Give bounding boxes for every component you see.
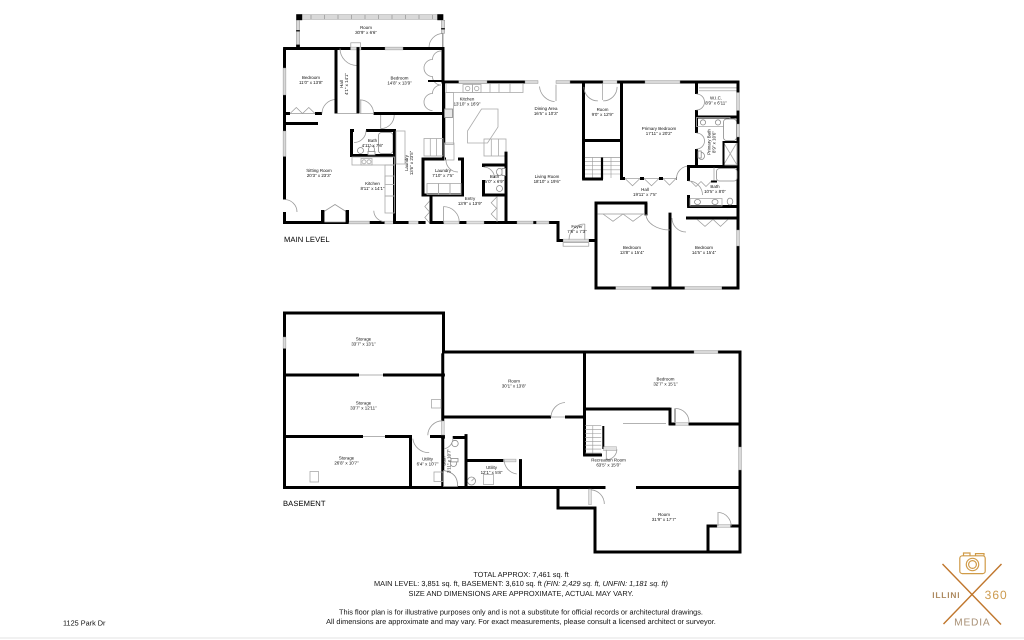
svg-text:11'0" x 13'8": 11'0" x 13'8" <box>299 80 323 85</box>
svg-text:BASEMENT: BASEMENT <box>283 499 326 508</box>
svg-text:MAIN LEVEL: MAIN LEVEL <box>284 235 330 244</box>
svg-text:All dimensions are approximate: All dimensions are approximate and may v… <box>326 617 716 626</box>
svg-text:19'11" x 7'5": 19'11" x 7'5" <box>633 192 657 197</box>
svg-text:10'5" x 8'0": 10'5" x 8'0" <box>704 189 726 194</box>
svg-text:13'9" x 13'9": 13'9" x 13'9" <box>458 201 483 206</box>
svg-text:16'5" x 10'3": 16'5" x 10'3" <box>534 111 559 116</box>
svg-text:26'8" x 10'7": 26'8" x 10'7" <box>334 461 359 466</box>
svg-text:MAIN LEVEL: 3,851 sq. ft, BASE: MAIN LEVEL: 3,851 sq. ft, BASEMENT: 3,61… <box>374 579 668 588</box>
svg-text:13'10" x 16'9": 13'10" x 16'9" <box>454 102 481 107</box>
svg-text:32'7" x 15'1": 32'7" x 15'1" <box>653 382 678 387</box>
svg-text:7'6" x 7'3": 7'6" x 7'3" <box>567 229 587 234</box>
svg-text:8'11" x 14'1": 8'11" x 14'1" <box>360 186 384 191</box>
svg-text:8'9" x 6'11": 8'9" x 6'11" <box>705 101 727 106</box>
svg-text:33'7" x 13'1": 33'7" x 13'1" <box>351 342 376 347</box>
svg-text:14'8" x 13'9": 14'8" x 13'9" <box>387 81 412 86</box>
svg-text:Primary Bath8'9" x 10'6": Primary Bath8'9" x 10'6" <box>707 129 717 155</box>
svg-text:4'11" x 7'6": 4'11" x 7'6" <box>362 143 384 148</box>
svg-text:7'10" x 7'5": 7'10" x 7'5" <box>432 173 454 178</box>
svg-text:13'8" x 15'4": 13'8" x 15'4" <box>620 250 645 255</box>
svg-text:This floor plan is for illustr: This floor plan is for illustrative purp… <box>339 607 703 616</box>
svg-text:14'5" x 15'4": 14'5" x 15'4" <box>692 250 717 255</box>
svg-text:17'11" x 20'2": 17'11" x 20'2" <box>646 131 673 136</box>
svg-text:18'10" x 19'6": 18'10" x 19'6" <box>534 179 561 184</box>
svg-text:5'0" x 6'9": 5'0" x 6'9" <box>485 179 505 184</box>
svg-text:360: 360 <box>985 588 1008 602</box>
svg-text:12'1" x 5'8": 12'1" x 5'8" <box>481 470 503 475</box>
svg-text:MEDIA: MEDIA <box>954 618 990 629</box>
svg-text:6'4" x 10'7": 6'4" x 10'7" <box>417 462 439 467</box>
svg-text:30'1" x 13'8": 30'1" x 13'8" <box>502 384 527 389</box>
svg-text:63'5" x 15'0": 63'5" x 15'0" <box>596 463 621 468</box>
svg-text:SIZE AND DIMENSIONS ARE APPROX: SIZE AND DIMENSIONS ARE APPROXIMATE, ACT… <box>409 589 634 598</box>
svg-text:20'3" x 23'3": 20'3" x 23'3" <box>307 173 332 178</box>
svg-text:9'0" x 12'9": 9'0" x 12'9" <box>592 112 614 117</box>
svg-text:33'7" x 12'11": 33'7" x 12'11" <box>350 406 377 411</box>
svg-text:30'9" x 6'6": 30'9" x 6'6" <box>355 30 377 35</box>
svg-text:ILLINI: ILLINI <box>932 590 960 600</box>
svg-text:1125 Park Dr: 1125 Park Dr <box>63 619 106 628</box>
svg-text:TOTAL APPROX: 7,461 sq. ft: TOTAL APPROX: 7,461 sq. ft <box>473 570 568 579</box>
svg-text:31'9" x 17'7": 31'9" x 17'7" <box>652 517 677 522</box>
